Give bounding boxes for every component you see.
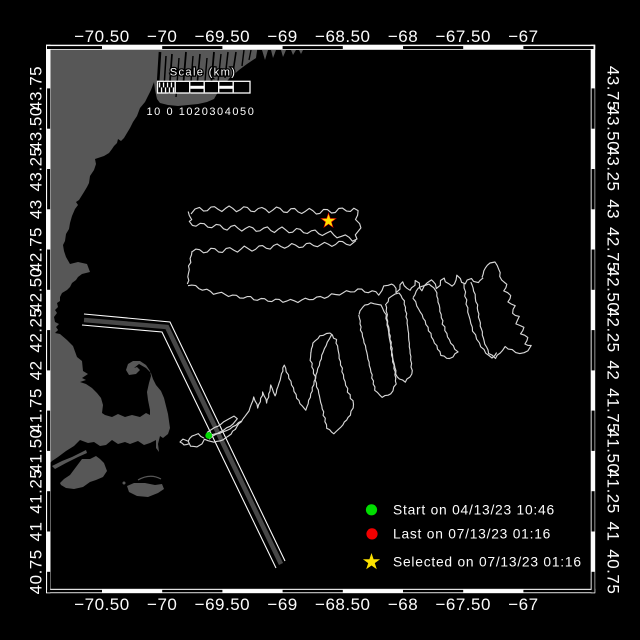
svg-text:−67: −67 xyxy=(508,27,538,46)
svg-text:43.25: 43.25 xyxy=(604,146,623,191)
svg-text:43.25: 43.25 xyxy=(27,146,46,191)
svg-text:10 0 1020304050: 10 0 1020304050 xyxy=(147,106,256,118)
svg-text:−70.50: −70.50 xyxy=(74,27,129,46)
svg-text:43.75: 43.75 xyxy=(27,66,46,111)
svg-text:42.75: 42.75 xyxy=(27,227,46,272)
svg-text:−68: −68 xyxy=(388,595,418,614)
svg-text:41.50: 41.50 xyxy=(604,428,623,473)
svg-text:−68.50: −68.50 xyxy=(315,27,370,46)
svg-text:42.50: 42.50 xyxy=(604,267,623,312)
svg-text:−70: −70 xyxy=(147,27,177,46)
svg-text:41.75: 41.75 xyxy=(27,388,46,433)
svg-text:−67: −67 xyxy=(508,595,538,614)
svg-text:−69.50: −69.50 xyxy=(195,595,250,614)
svg-text:42: 42 xyxy=(27,360,46,380)
svg-text:41.25: 41.25 xyxy=(27,469,46,514)
svg-text:41: 41 xyxy=(604,522,623,542)
svg-text:40.75: 40.75 xyxy=(27,549,46,594)
svg-text:43: 43 xyxy=(27,199,46,219)
svg-text:42.50: 42.50 xyxy=(27,267,46,312)
svg-text:40.75: 40.75 xyxy=(604,549,623,594)
svg-text:43.50: 43.50 xyxy=(604,106,623,151)
svg-text:−69: −69 xyxy=(267,595,297,614)
svg-text:−70.50: −70.50 xyxy=(74,595,129,614)
svg-text:43.50: 43.50 xyxy=(27,106,46,151)
svg-text:−68: −68 xyxy=(388,27,418,46)
svg-text:41.75: 41.75 xyxy=(604,388,623,433)
svg-text:−67.50: −67.50 xyxy=(435,27,490,46)
svg-text:Selected on 07/13/23 01:16: Selected on 07/13/23 01:16 xyxy=(393,555,582,570)
svg-text:Last on 07/13/23 01:16: Last on 07/13/23 01:16 xyxy=(393,527,551,542)
svg-text:42: 42 xyxy=(604,360,623,380)
svg-text:−69: −69 xyxy=(267,27,297,46)
svg-text:42.25: 42.25 xyxy=(604,308,623,353)
svg-text:−67.50: −67.50 xyxy=(435,595,490,614)
svg-text:−70: −70 xyxy=(147,595,177,614)
svg-text:43.75: 43.75 xyxy=(604,66,623,111)
svg-text:42.25: 42.25 xyxy=(27,308,46,353)
svg-text:43: 43 xyxy=(604,199,623,219)
svg-text:Scale (km): Scale (km) xyxy=(170,67,236,79)
svg-text:−68.50: −68.50 xyxy=(315,595,370,614)
svg-text:42.75: 42.75 xyxy=(604,227,623,272)
svg-text:41: 41 xyxy=(27,522,46,542)
svg-text:Start on 04/13/23 10:46: Start on 04/13/23 10:46 xyxy=(393,503,555,518)
svg-text:41.25: 41.25 xyxy=(604,469,623,514)
svg-text:41.50: 41.50 xyxy=(27,428,46,473)
svg-text:−69.50: −69.50 xyxy=(195,27,250,46)
